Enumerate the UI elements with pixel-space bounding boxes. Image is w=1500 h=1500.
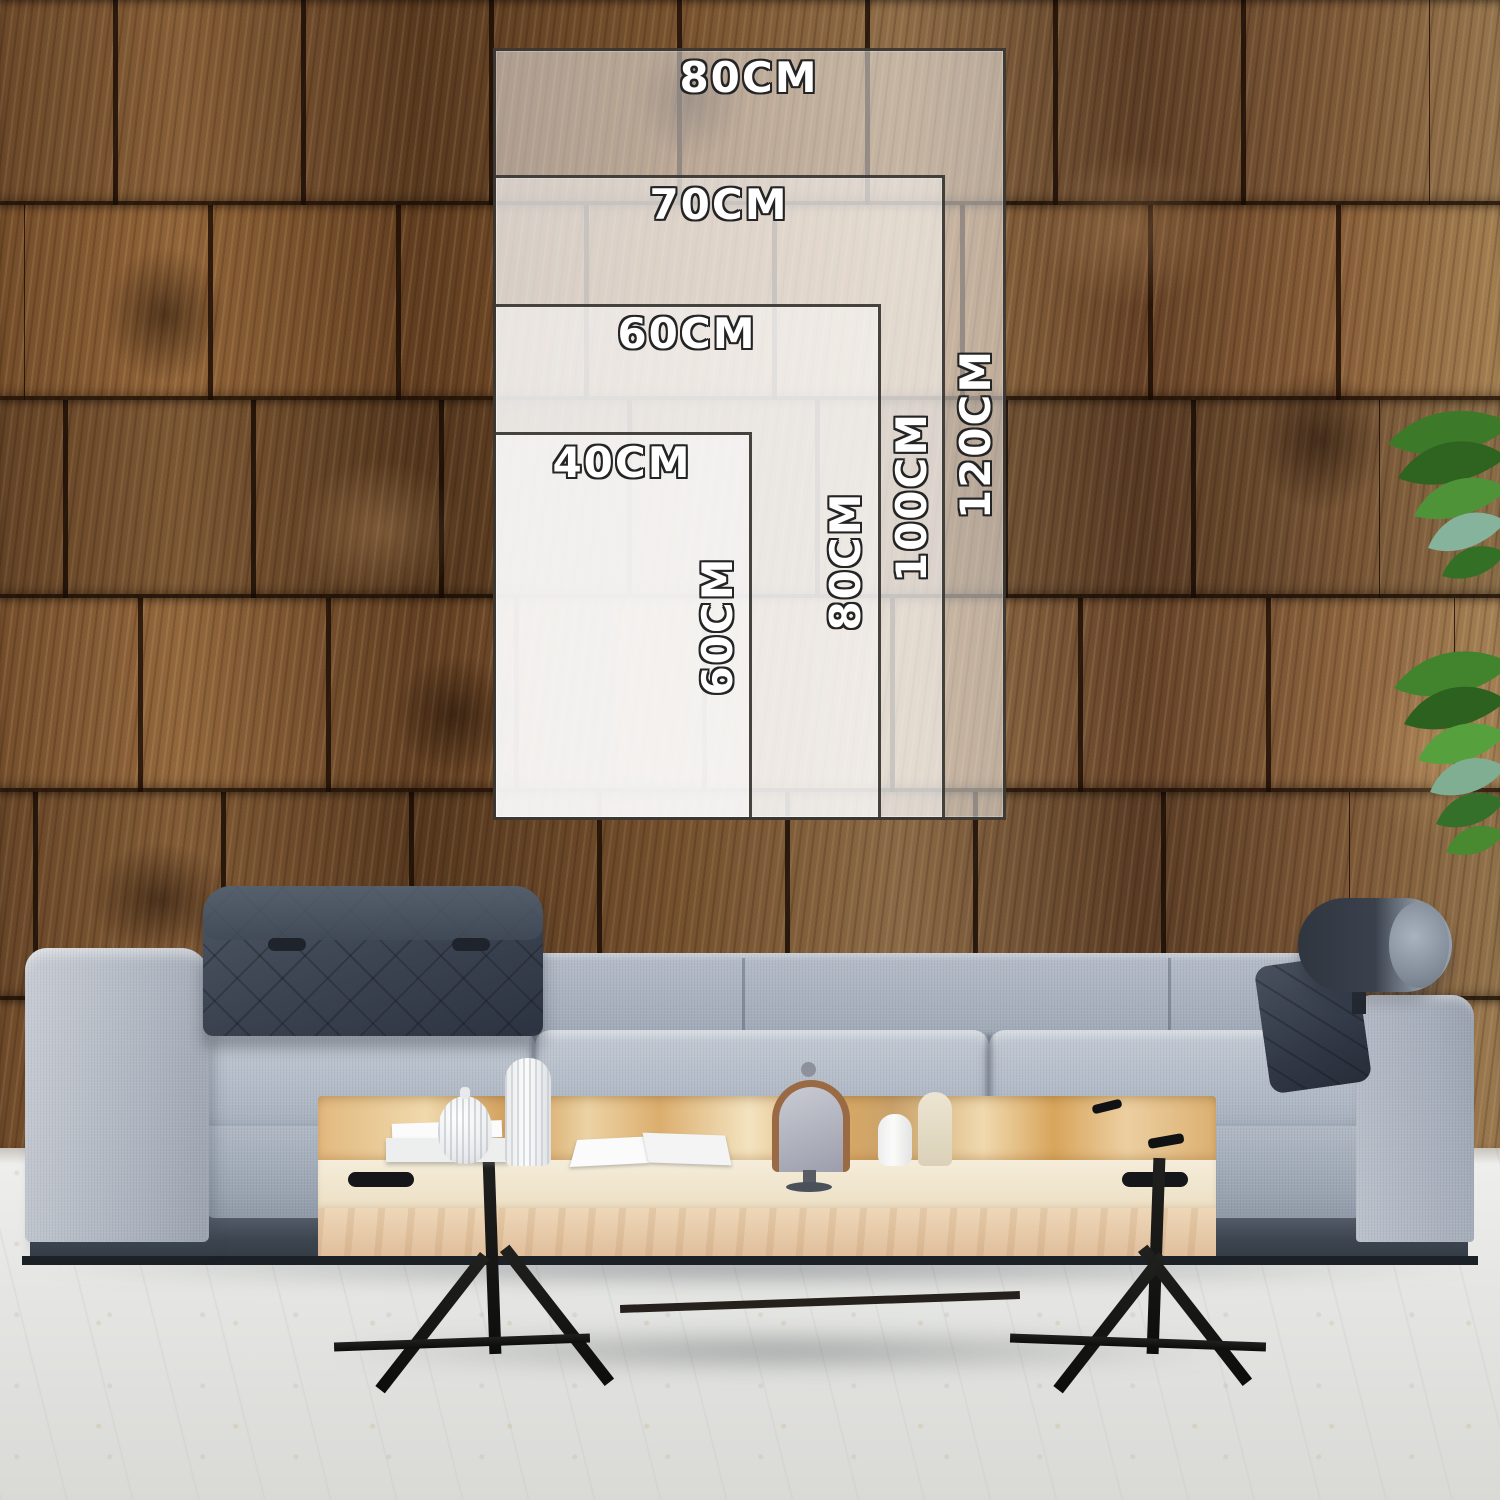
width-label-80cm: 80CM: [679, 55, 818, 101]
width-label-70cm: 70CM: [649, 182, 788, 228]
ribbed-vase: [505, 1058, 551, 1166]
cloche-base: [786, 1182, 832, 1192]
height-label-60cm: 60CM: [695, 556, 741, 695]
living-room-size-guide-scene: 80CM 70CM 60CM 40CM 120CM 100CM 80CM 60C…: [0, 0, 1500, 1500]
table-front-lower-panel: [318, 1208, 1216, 1256]
height-label-80cm: 80CM: [823, 491, 869, 630]
height-label-120cm: 120CM: [953, 349, 999, 519]
cloche-knob: [801, 1062, 816, 1077]
sofa-bolster-pillow: [1298, 898, 1452, 992]
table-handle-left: [348, 1172, 414, 1187]
open-book-right-page: [642, 1133, 731, 1166]
sofa-armrest-right: [1356, 995, 1474, 1242]
headrest-strap-slot: [268, 938, 306, 951]
sofa-headrest-quilt: [203, 886, 543, 1036]
width-label-60cm: 60CM: [617, 311, 756, 357]
cream-candle: [918, 1092, 952, 1166]
plant: [1370, 400, 1500, 870]
table-front-panel: [318, 1160, 1216, 1210]
gourd-vase: [438, 1096, 492, 1164]
height-label-100cm: 100CM: [889, 412, 935, 582]
small-white-bottle: [878, 1114, 912, 1166]
sofa-base-lip: [22, 1256, 1478, 1265]
cloche-mirror: [772, 1080, 850, 1172]
width-label-40cm: 40CM: [552, 440, 691, 486]
sofa-armrest-left: [25, 948, 209, 1242]
headrest-strap-slot: [452, 938, 490, 951]
